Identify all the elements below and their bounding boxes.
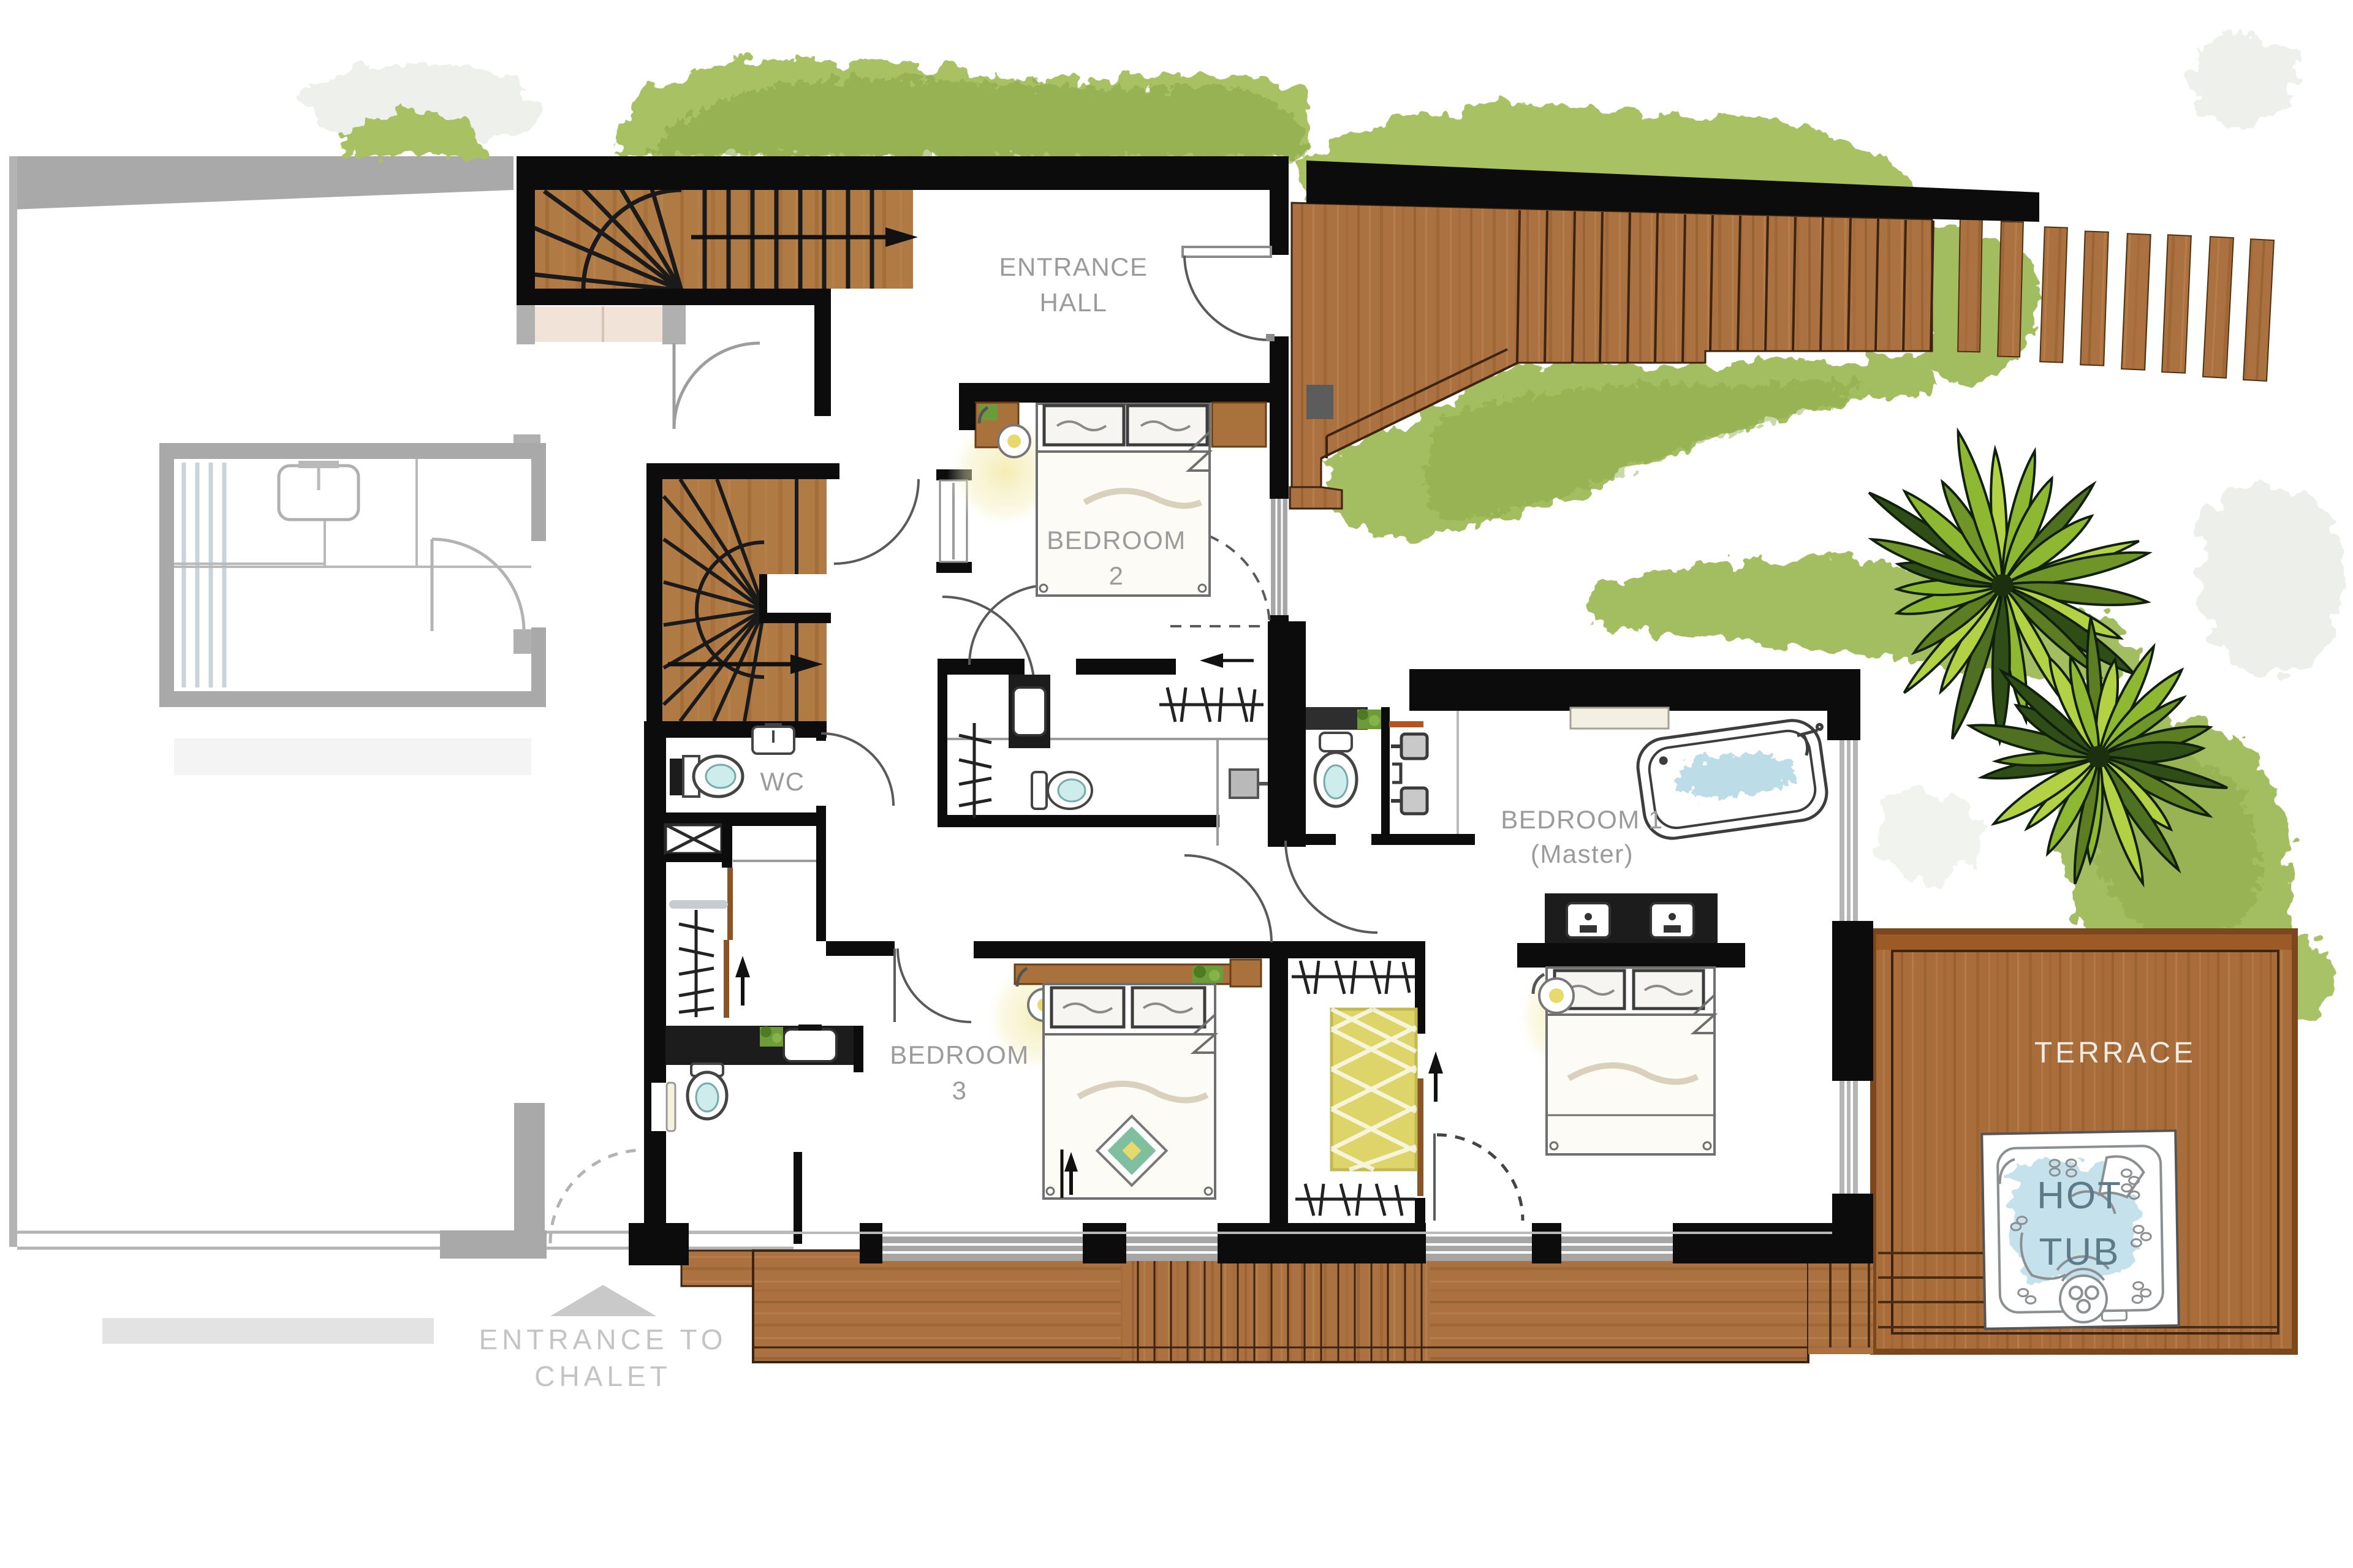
svg-text:HALL: HALL: [1039, 288, 1107, 317]
svg-text:WC: WC: [760, 767, 805, 796]
svg-text:3: 3: [952, 1076, 968, 1105]
svg-text:CHALET: CHALET: [534, 1360, 671, 1392]
svg-text:HOT: HOT: [2037, 1175, 2123, 1217]
svg-text:(Master): (Master): [1531, 839, 1634, 868]
svg-text:2: 2: [1109, 561, 1124, 590]
svg-text:TUB: TUB: [2039, 1231, 2121, 1273]
svg-text:BEDROOM: BEDROOM: [1047, 526, 1186, 555]
svg-text:BEDROOM: BEDROOM: [890, 1040, 1029, 1069]
svg-text:BEDROOM 1: BEDROOM 1: [1501, 805, 1664, 834]
svg-text:TERRACE: TERRACE: [2034, 1037, 2196, 1069]
svg-text:ENTRANCE TO: ENTRANCE TO: [479, 1324, 727, 1355]
svg-text:ENTRANCE: ENTRANCE: [999, 252, 1148, 281]
